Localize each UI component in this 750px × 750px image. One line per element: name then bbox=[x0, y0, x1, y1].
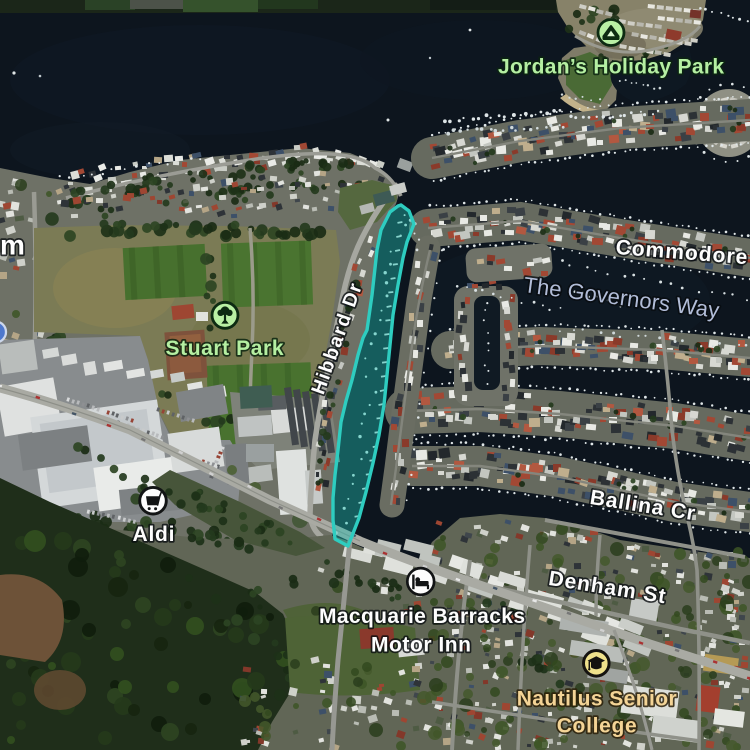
svg-text:Macquarie Barracks: Macquarie Barracks bbox=[319, 605, 525, 628]
svg-text:Aldi: Aldi bbox=[133, 523, 175, 546]
svg-text:Jordan’s Holiday Park: Jordan’s Holiday Park bbox=[498, 56, 724, 79]
svg-text:Motor Inn: Motor Inn bbox=[371, 634, 471, 657]
svg-text:Stuart Park: Stuart Park bbox=[166, 337, 284, 360]
svg-text:College: College bbox=[557, 715, 637, 738]
svg-text:m: m bbox=[0, 230, 25, 261]
svg-text:Nautilus Senior: Nautilus Senior bbox=[517, 688, 677, 711]
